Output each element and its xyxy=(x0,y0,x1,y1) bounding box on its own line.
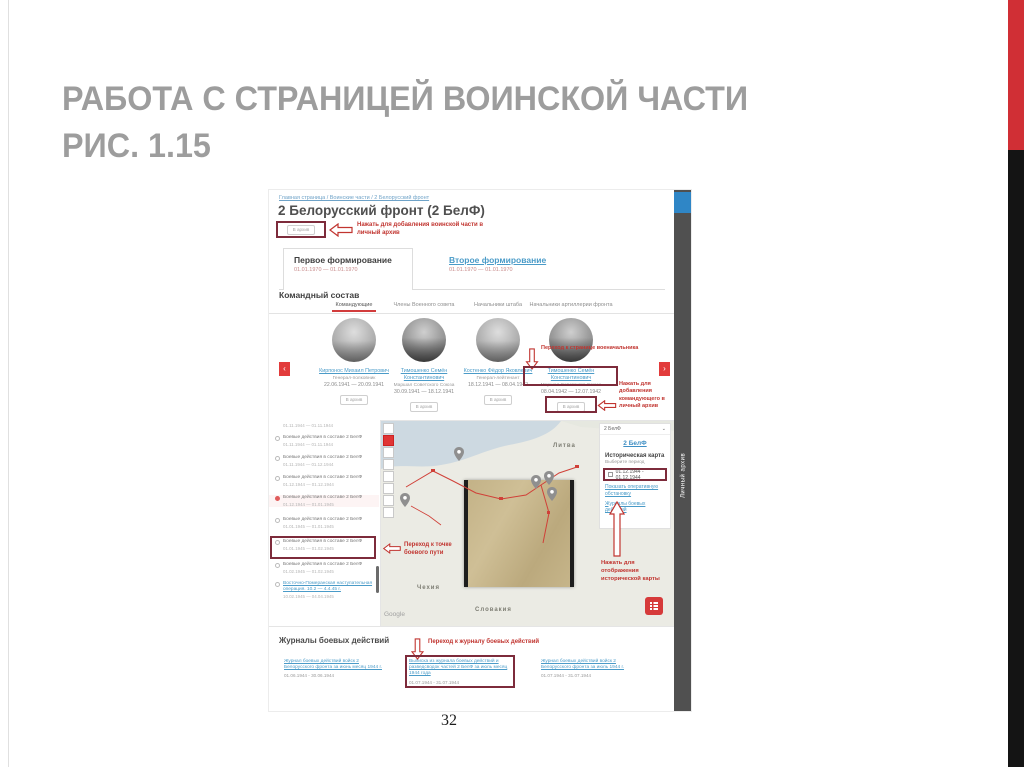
tab-second-formation[interactable]: Второе формирование 01.01.1970 — 01.01.1… xyxy=(449,255,546,273)
annotation-arrow-left-icon xyxy=(597,400,617,411)
annotation-arrow-left-icon xyxy=(383,543,401,554)
battle-item-label: Боевые действия в составе 2 БелФ xyxy=(283,475,375,481)
journal-annotation-box xyxy=(405,655,515,688)
active-tab-underline xyxy=(332,310,376,312)
map-pin-icon[interactable] xyxy=(454,447,464,461)
personal-archive-label: Личный архив xyxy=(674,430,692,520)
first-formation-dates: 01.01.1970 — 01.01.1970 xyxy=(294,267,402,273)
commander-archive-button[interactable]: В архив xyxy=(340,395,369,405)
battle-actions-list: 01.11.1944 — 01.11.1944 Боевые действия … xyxy=(269,420,381,626)
commander-archive-button[interactable]: В архив xyxy=(410,402,439,412)
formation-tabs: Первое формирование 01.01.1970 — 01.01.1… xyxy=(279,248,665,290)
radio-icon xyxy=(275,563,280,568)
historic-period-annotation-box[interactable]: 01.12.1944 - 01.12.1944 xyxy=(603,468,667,481)
accent-stripe-black xyxy=(1008,150,1024,767)
commander-photo-2[interactable] xyxy=(402,318,446,362)
commander-photo-3[interactable] xyxy=(476,318,520,362)
map-label-czechia: Чехия xyxy=(417,585,440,591)
journals-heading: Журналы боевых действий xyxy=(279,636,389,645)
battle-item-label: Боевые действия в составе 2 БелФ xyxy=(283,495,375,501)
list-item[interactable]: 01.11.1944 — 01.11.1944 xyxy=(269,422,379,428)
map-pin-icon[interactable] xyxy=(547,487,557,501)
map-pin-icon[interactable] xyxy=(544,471,554,485)
journal-dates: 01.07.1944 - 31.07.1944 xyxy=(541,673,645,678)
operation-dates: 10.02.1945 — 04.04.1945 xyxy=(283,594,379,599)
radio-icon xyxy=(275,582,280,587)
tab-chiefs-of-staff[interactable]: Начальники штаба xyxy=(474,302,522,308)
operation-link[interactable]: Восточно-Померанская наступательная опер… xyxy=(283,581,373,593)
period-hint: Выберите период xyxy=(605,460,670,465)
add-unit-annotation-box: В архив xyxy=(276,221,326,238)
battle-item-label: Боевые действия в составе 2 БелФ xyxy=(283,455,375,461)
page-number: 32 xyxy=(419,712,479,730)
historic-map-annotation-text: Нажать для отображения исторической карт… xyxy=(601,560,667,583)
commander-name-annotation-box xyxy=(523,366,618,386)
battle-item-label: Боевые действия в составе 2 БелФ xyxy=(283,517,375,523)
journal-link[interactable]: Журнал боевых действий войск 2 Белорусск… xyxy=(541,659,645,671)
second-formation-dates: 01.01.1970 — 01.01.1970 xyxy=(449,267,546,273)
battle-item-dates: 01.11.1944 — 01.11.1944 xyxy=(283,423,379,428)
commander-page-annotation-text: Переход к странице военачальника xyxy=(541,345,639,352)
battle-item-dates: 01.11.1944 — 01.11.1944 xyxy=(283,442,379,447)
list-item[interactable]: Боевые действия в составе 2 БелФ 01.11.1… xyxy=(269,455,379,467)
scroll-top-button[interactable] xyxy=(674,192,692,213)
tab-commanders[interactable]: Командующие xyxy=(336,302,373,308)
divider xyxy=(269,626,674,627)
list-item[interactable]: Боевые действия в составе 2 БелФ 01.02.1… xyxy=(269,562,379,574)
unit-page-title: 2 Белорусский фронт (2 БелФ) xyxy=(278,203,485,218)
radio-icon xyxy=(275,496,280,501)
battle-item-dates: 01.01.1945 — 01.01.1945 xyxy=(283,524,379,529)
add-unit-archive-button[interactable]: В архив xyxy=(287,225,316,235)
divider xyxy=(269,313,674,314)
route-point-annotation-box xyxy=(270,536,376,559)
battle-item-dates: 01.12.1944 — 01.01.1945 xyxy=(283,502,379,507)
map-pin-icon[interactable] xyxy=(400,493,410,507)
slide-left-border xyxy=(8,0,9,767)
accent-stripe-red xyxy=(1008,0,1024,150)
list-item[interactable]: Боевые действия в составе 2 БелФ 01.11.1… xyxy=(269,435,379,447)
tab-artillery-chiefs[interactable]: Начальники артиллерии фронта xyxy=(529,302,612,308)
map-pin-icon[interactable] xyxy=(531,475,541,489)
unit-dropdown[interactable]: 2 БелФ ⌄ xyxy=(600,424,670,435)
first-formation-label: Первое формирование xyxy=(294,255,402,265)
journal-annotation-text: Переход к журналу боевых действий xyxy=(428,638,540,646)
commander-name-link[interactable]: Тимошенко Семён Константинович xyxy=(387,368,461,382)
route-point-annotation-text: Переход к точке боевого пути xyxy=(404,541,464,557)
commander-photo-4[interactable] xyxy=(549,318,593,362)
battle-item-dates: 01.11.1944 — 01.12.1944 xyxy=(283,462,379,467)
second-formation-label: Второе формирование xyxy=(449,255,546,265)
list-item-operation[interactable]: Восточно-Померанская наступательная опер… xyxy=(269,581,379,599)
battle-item-dates: 01.02.1945 — 01.02.1945 xyxy=(283,569,379,574)
tab-first-formation[interactable]: Первое формирование 01.01.1970 — 01.01.1… xyxy=(283,248,413,290)
journal-link[interactable]: Журнал боевых действий войск 2 Белорусск… xyxy=(284,659,384,671)
radio-icon xyxy=(275,436,280,441)
chevron-down-icon: ⌄ xyxy=(662,426,666,432)
slide-title-line1: РАБОТА С СТРАНИЦЕЙ ВОИНСКОЙ ЧАСТИ xyxy=(62,76,748,123)
battle-item-label: Боевые действия в составе 2 БелФ xyxy=(283,562,375,568)
radio-icon xyxy=(275,476,280,481)
map-canvas[interactable]: Литва Чехия Словакия Google Переход к то… xyxy=(381,421,674,626)
list-item[interactable]: Боевые действия в составе 2 БелФ 01.01.1… xyxy=(269,517,379,529)
military-unit-page-screenshot: Главная страница / Воинские части / 2 Бе… xyxy=(268,189,692,712)
radio-icon xyxy=(275,456,280,461)
map-label-slovakia: Словакия xyxy=(475,607,512,613)
battle-item-label: Боевые действия в составе 2 БелФ xyxy=(283,435,375,441)
breadcrumb[interactable]: Главная страница / Воинские части / 2 Бе… xyxy=(279,195,429,201)
slide-title-line2: РИС. 1.15 xyxy=(62,123,748,170)
situation-link[interactable]: Показать оперативную обстановку xyxy=(605,484,665,498)
prev-arrow-icon[interactable]: ‹ xyxy=(279,362,290,376)
commander-photo-1[interactable] xyxy=(332,318,376,362)
commander-dates: 08.04.1942 — 12.07.1942 xyxy=(527,389,615,395)
slide-title: РАБОТА С СТРАНИЦЕЙ ВОИНСКОЙ ЧАСТИ РИС. 1… xyxy=(62,76,748,170)
map-label-lithuania: Литва xyxy=(553,443,576,449)
journal-dates: 01.06.1944 - 30.06.1944 xyxy=(284,673,384,678)
add-commander-annotation-box xyxy=(545,396,597,413)
journal-item[interactable]: Журнал боевых действий войск 2 Белорусск… xyxy=(541,659,645,678)
period-value: 01.12.1944 - 01.12.1944 xyxy=(616,469,662,481)
add-commander-annotation-text: Нажать для добавления командующего в лич… xyxy=(619,381,673,411)
battle-item-dates: 01.12.1944 — 01.12.1944 xyxy=(283,482,379,487)
radio-icon xyxy=(275,518,280,523)
annotation-arrow-up-icon xyxy=(609,501,625,557)
next-arrow-icon[interactable]: › xyxy=(659,362,670,376)
list-item[interactable]: Боевые действия в составе 2 БелФ 01.12.1… xyxy=(269,475,379,487)
add-unit-annotation-text: Нажать для добавления воинской части в л… xyxy=(357,221,507,237)
unit-link[interactable]: 2 БелФ xyxy=(600,440,670,447)
scrollbar-thumb[interactable] xyxy=(376,566,379,593)
list-item-active[interactable]: Боевые действия в составе 2 БелФ 01.12.1… xyxy=(269,495,379,507)
journal-item[interactable]: Журнал боевых действий войск 2 Белорусск… xyxy=(284,659,384,678)
historic-map-title: Историческая карта xyxy=(605,453,670,459)
command-staff-heading: Командный состав xyxy=(279,290,359,300)
commander-archive-button[interactable]: В архив xyxy=(484,395,513,405)
google-attribution: Google xyxy=(384,611,405,618)
annotation-arrow-left-icon xyxy=(329,223,353,237)
presentation-slide: РАБОТА С СТРАНИЦЕЙ ВОИНСКОЙ ЧАСТИ РИС. 1… xyxy=(0,0,1024,767)
checkbox-icon[interactable] xyxy=(608,472,613,477)
tab-military-council[interactable]: Члены Военного совета xyxy=(394,302,455,308)
unit-dropdown-value: 2 БелФ xyxy=(604,426,621,432)
layers-grid-icon[interactable] xyxy=(645,597,663,615)
